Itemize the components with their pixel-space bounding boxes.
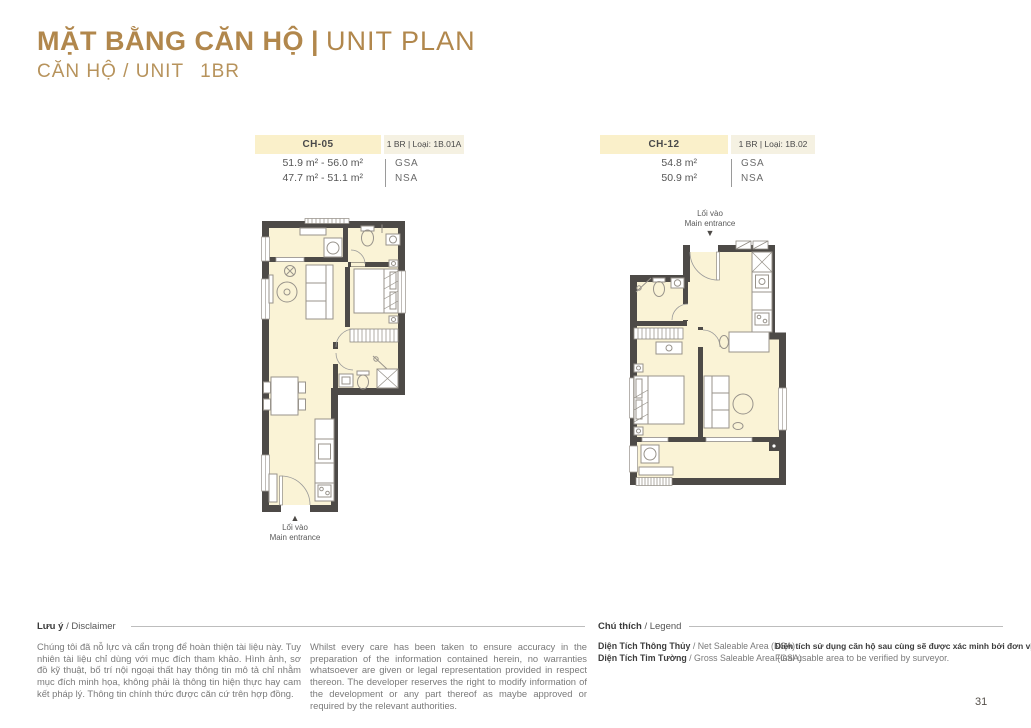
sofa: [704, 376, 729, 428]
nsa-label-ch05: NSA: [395, 173, 418, 184]
bed: [634, 376, 684, 424]
disclaimer-rule: [131, 626, 585, 627]
unit-type: 1BR: [200, 61, 240, 82]
legend-items: Diện Tích Thông Thủy / Net Saleable Area…: [598, 641, 802, 664]
entrance-text-vi: Lối vào: [245, 523, 345, 533]
legend-heading-en: / Legend: [644, 621, 681, 632]
legend-item-nsa: Diện Tích Thông Thủy / Net Saleable Area…: [598, 641, 802, 653]
gsa-value-ch12: 54.8 m²: [600, 157, 697, 169]
dresser: [656, 342, 682, 354]
bathroom-sink: [671, 278, 684, 288]
legend-note-vi: Diện tích sử dụng căn hộ sau cùng sẽ đượ…: [775, 641, 1015, 651]
kitchen-counter: [315, 419, 334, 501]
floorplan-ch12: [626, 240, 796, 492]
legend-note-en: Final usable area to be verified by surv…: [775, 653, 1015, 663]
page-title: MẶT BẰNG CĂN HỘ|UNIT PLAN: [37, 26, 476, 57]
legend-heading: Chú thích / Legend: [598, 621, 681, 632]
page-subtitle: CĂN HỘ / UNIT1BR: [37, 61, 240, 83]
entrance-text-en: Main entrance: [245, 533, 345, 543]
balcony-railing: [305, 219, 349, 224]
entrance-label-ch12: Lối vào Main entrance ▼: [660, 209, 760, 238]
nsa-value-ch12: 50.9 m²: [600, 172, 697, 184]
legend-item-gsa: Diện Tích Tim Tường / Gross Saleable Are…: [598, 653, 802, 665]
gsa-label-ch12: GSA: [741, 158, 765, 169]
page-title-vietnamese: MẶT BẰNG CĂN HỘ: [37, 26, 304, 56]
unit-type-label-ch12: 1 BR | Loại: 1B.02: [731, 135, 815, 154]
wardrobe: [634, 328, 683, 339]
disclaimer-heading: Lưu ý / Disclaimer: [37, 621, 116, 632]
entrance-label-ch05: ▲ Lối vào Main entrance: [245, 513, 345, 542]
shaft: [377, 369, 398, 388]
balcony-bench: [639, 467, 673, 475]
disclaimer-heading-en: / Disclaimer: [66, 621, 116, 632]
area-divider-ch05: [385, 159, 386, 187]
entrance-text-vi: Lối vào: [660, 209, 760, 219]
page-subtitle-label: CĂN HỘ / UNIT: [37, 61, 184, 82]
sofa: [306, 265, 333, 319]
washing-machine: [324, 238, 342, 257]
utility-box: [769, 441, 779, 451]
bathroom-sink: [386, 234, 400, 245]
bed: [354, 269, 398, 313]
entrance-text-en: Main entrance: [660, 219, 760, 229]
tv-console: [269, 275, 273, 303]
nsa-value-ch05: 47.7 m² - 51.1 m²: [255, 172, 363, 184]
legend-note: Diện tích sử dụng căn hộ sau cùng sẽ đượ…: [775, 641, 1015, 663]
balcony-grate: [636, 478, 672, 486]
kitchen-counter: [752, 252, 772, 332]
bathroom2-sink: [339, 374, 353, 387]
legend-item-gsa-vi: Diện Tích Tim Tường: [598, 653, 687, 663]
shoe-cabinet: [269, 474, 277, 502]
legend-item-nsa-vi: Diện Tích Thông Thủy: [598, 641, 690, 651]
disclaimer-text-vietnamese: Chúng tôi đã nỗ lực và cẩn trọng để hoàn…: [37, 641, 301, 700]
nightstand: [389, 260, 398, 267]
page-number: 31: [975, 696, 987, 708]
unit-type-label-ch05: 1 BR | Loại: 1B.01A: [384, 135, 464, 154]
wardrobe: [350, 329, 398, 342]
gsa-value-ch05: 51.9 m² - 56.0 m²: [255, 157, 363, 169]
nightstand: [634, 364, 643, 372]
nightstand: [389, 316, 398, 323]
disclaimer-text-english: Whilst every care has been taken to ensu…: [310, 641, 587, 711]
nightstand: [634, 427, 643, 435]
legend-heading-vi: Chú thích: [598, 621, 642, 632]
page-title-separator: |: [311, 26, 319, 56]
nsa-label-ch12: NSA: [741, 173, 764, 184]
floorplan-ch05: [250, 217, 415, 517]
page-title-english: UNIT PLAN: [326, 26, 476, 56]
unit-code-ch12: CH-12: [600, 135, 728, 154]
balcony-shelf: [300, 228, 326, 235]
washing-machine: [641, 445, 659, 463]
disclaimer-heading-vi: Lưu ý: [37, 621, 63, 632]
gsa-label-ch05: GSA: [395, 158, 419, 169]
area-divider-ch12: [731, 159, 732, 187]
legend-rule: [689, 626, 1003, 627]
entrance-arrow-up-icon: ▲: [245, 513, 345, 523]
unit-code-ch05: CH-05: [255, 135, 381, 154]
entrance-arrow-down-icon: ▼: [660, 228, 760, 238]
